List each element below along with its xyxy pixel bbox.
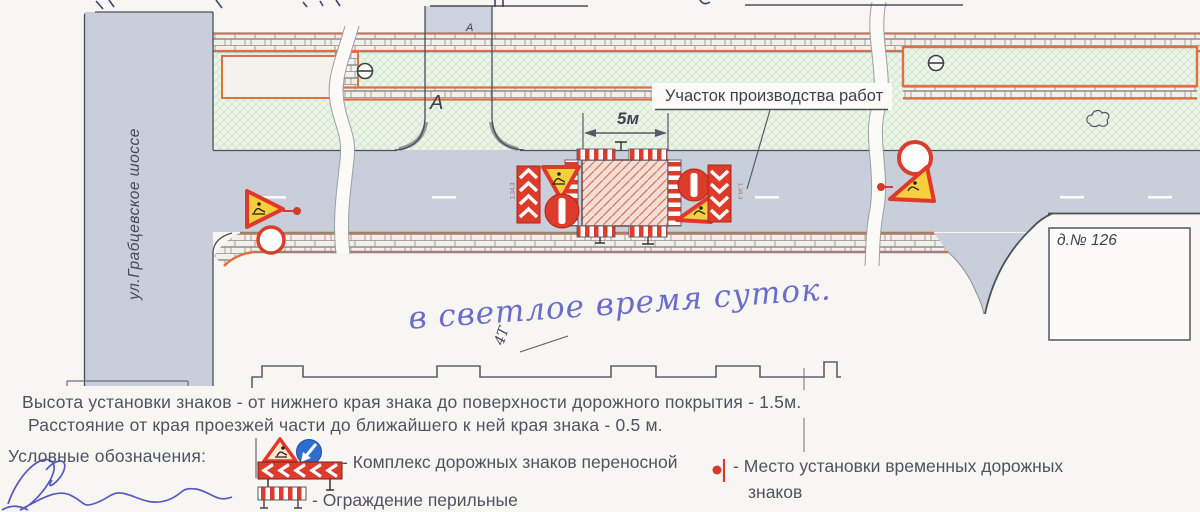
legend-title: Условные обозначения: <box>8 446 206 467</box>
sign-group-workzone-right <box>677 165 731 222</box>
dimension-label: 5м <box>598 109 658 129</box>
work-area-hatch <box>582 160 668 226</box>
legend-railing-label: - Ограждение перильные <box>312 490 518 511</box>
work-area-label: Участок производства работ <box>658 87 890 106</box>
sign-code-right: 1.34.3 <box>736 183 742 200</box>
round-sign-icon <box>258 227 284 253</box>
temp-sign-marker-icon <box>877 183 885 191</box>
legend-sign-complex-label: - Комплекс дорожных знаков переносной <box>342 452 677 473</box>
building-label: д.№ 126 <box>1057 232 1117 250</box>
street-name-label: ул.Грабцевское шоссе <box>126 114 144 314</box>
note-line-1: Высота установки знаков - от нижнего кра… <box>22 392 801 413</box>
legend-temp-signs-label-line1: - Место установки временных дорожных <box>733 456 1063 477</box>
sign-code-left: 1.34.3 <box>510 183 516 200</box>
top-access-label: А <box>466 22 473 34</box>
driveway-label: А <box>430 92 443 115</box>
legend-temp-signs-label-line2: знаков <box>748 482 802 503</box>
note-line-2: Расстояние от края проезжей части до бли… <box>28 415 663 436</box>
traffic-scheme-document: ул.Грабцевское шоссе Участок производств… <box>0 0 1200 512</box>
temp-sign-marker-icon <box>293 207 301 215</box>
